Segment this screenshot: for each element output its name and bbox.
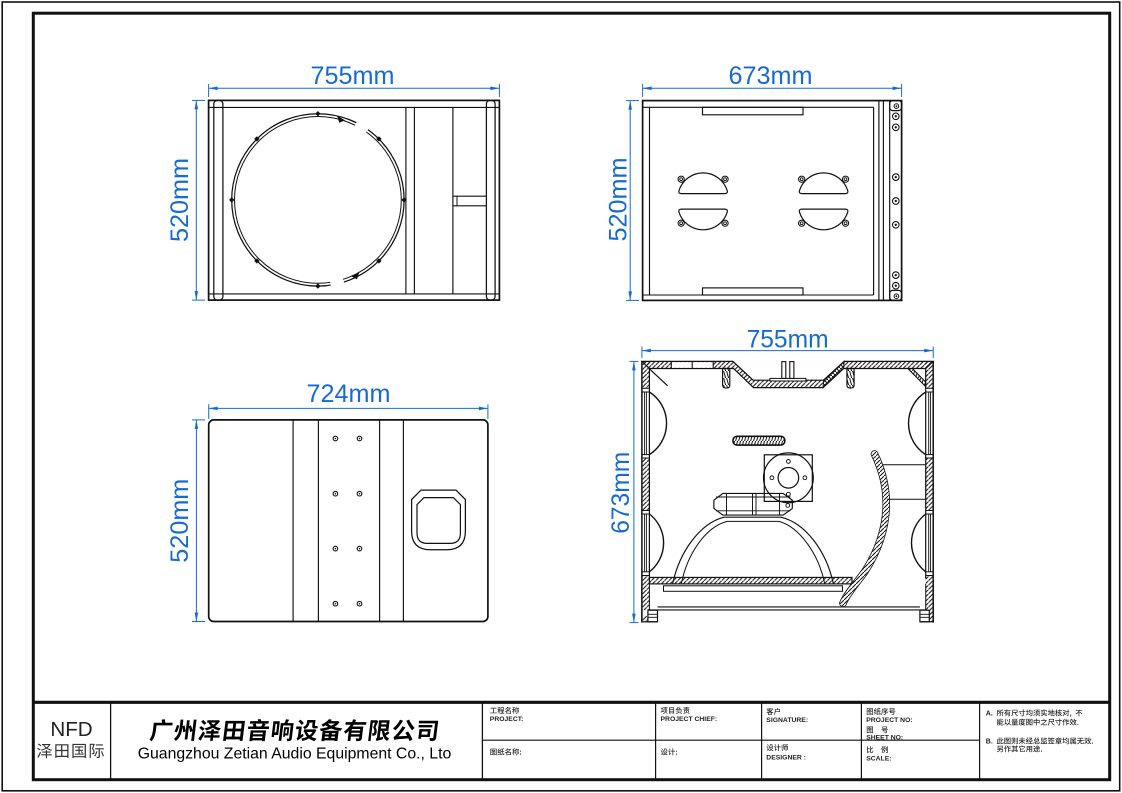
svg-text:NFD: NFD xyxy=(50,718,92,741)
svg-text:724mm: 724mm xyxy=(307,380,391,408)
svg-text:A.: A. xyxy=(986,711,993,718)
svg-text:673mm: 673mm xyxy=(608,452,635,534)
svg-text:520mm: 520mm xyxy=(166,479,194,563)
svg-text:PROJECT NO:: PROJECT NO: xyxy=(866,717,912,724)
svg-text:673mm: 673mm xyxy=(729,62,813,90)
svg-text:SCALE:: SCALE: xyxy=(866,755,891,762)
svg-text:SHEET NO:: SHEET NO: xyxy=(866,735,903,742)
svg-text:B.: B. xyxy=(986,739,993,746)
svg-text:DESIGNER :: DESIGNER : xyxy=(766,754,806,761)
svg-text:755mm: 755mm xyxy=(747,327,829,354)
svg-text:PROJECT:: PROJECT: xyxy=(490,716,524,723)
svg-text:520mm: 520mm xyxy=(166,158,194,242)
svg-text:SIGNATURE:: SIGNATURE: xyxy=(766,717,808,724)
svg-text:PROJECT CHIEF:: PROJECT CHIEF: xyxy=(661,716,718,723)
svg-text:520mm: 520mm xyxy=(604,158,632,242)
svg-text:755mm: 755mm xyxy=(311,62,395,90)
svg-text:Guangzhou Zetian Audio Equipme: Guangzhou Zetian Audio Equipment Co., Lt… xyxy=(138,745,452,762)
